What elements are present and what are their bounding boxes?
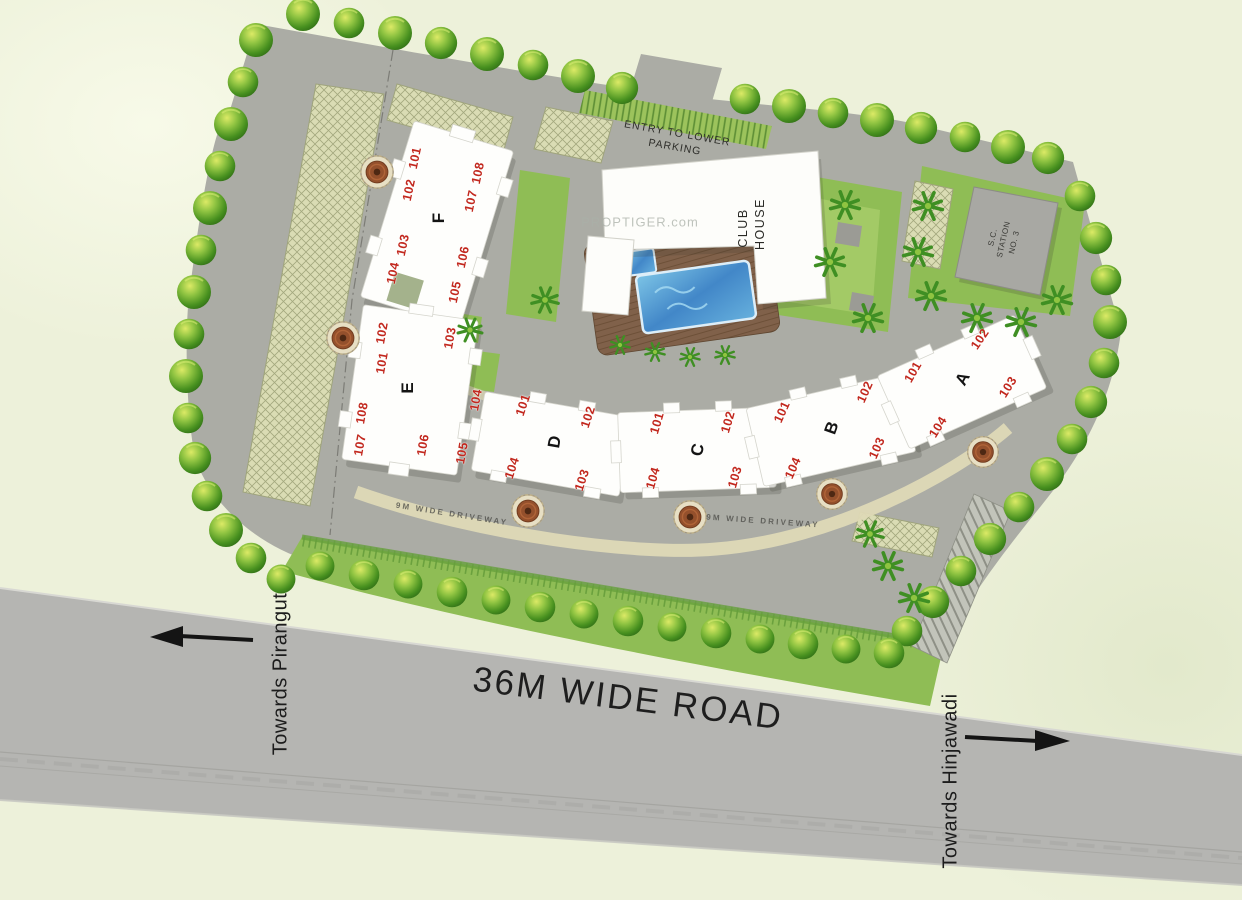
unit-label-F-105: 105 (446, 280, 464, 304)
unit-label-C-101: 101 (647, 410, 667, 435)
direction-label-pirangut: Towards Pirangut (270, 593, 293, 756)
site-plan: 101 102 103 104 105 106 107 108 F 101 10… (0, 0, 1242, 900)
unit-label-D-104: 104 (502, 455, 522, 480)
unit-label-E-105: 105 (453, 441, 471, 465)
unit-label-E-108: 108 (353, 401, 371, 425)
direction-label-hinjawadi: Towards Hinjawadi (940, 693, 963, 868)
unit-label-F-102: 102 (400, 178, 418, 202)
unit-label-E-103: 103 (441, 326, 459, 350)
building-D-label: D (544, 434, 566, 450)
unit-label-D-103: 103 (572, 467, 592, 492)
unit-label-F-108: 108 (469, 161, 487, 185)
unit-label-F-107: 107 (462, 189, 480, 213)
building-F-label: F (429, 213, 449, 223)
unit-label-B-101: 101 (771, 399, 793, 425)
building-A-label: A (951, 369, 974, 389)
unit-label-A-103: 103 (996, 374, 1020, 400)
unit-label-E-101: 101 (373, 351, 391, 375)
watermark: PROPTIGER.com (581, 215, 699, 230)
unit-label-A-104: 104 (926, 414, 950, 440)
main-road-label: 36M WIDE ROAD (470, 660, 785, 739)
unit-label-E-102: 102 (373, 321, 391, 345)
unit-label-E-107: 107 (351, 433, 369, 457)
unit-label-C-103: 103 (725, 464, 745, 489)
unit-label-F-101: 101 (406, 146, 424, 170)
unit-label-D-102: 102 (578, 404, 598, 429)
unit-label-C-104: 104 (643, 465, 663, 490)
unit-label-A-101: 101 (901, 359, 924, 385)
unit-label-F-104: 104 (384, 261, 402, 285)
unit-label-F-106: 106 (454, 245, 472, 269)
building-B-label: B (821, 419, 844, 437)
building-E-label: E (398, 382, 418, 393)
unit-label-F-103: 103 (394, 233, 412, 257)
unit-label-B-102: 102 (854, 379, 876, 405)
plan-labels: 101 102 103 104 105 106 107 108 F 101 10… (0, 0, 1242, 900)
unit-label-B-103: 103 (866, 435, 888, 461)
clubhouse-label: CLUB HOUSE (735, 206, 769, 250)
unit-label-E-104: 104 (467, 388, 485, 412)
unit-label-E-106: 106 (414, 433, 432, 457)
driveway-label-east: 9M WIDE DRIVEWAY (706, 513, 820, 530)
unit-label-C-102: 102 (718, 409, 738, 434)
driveway-label-west: 9M WIDE DRIVEWAY (395, 501, 509, 528)
unit-label-A-102: 102 (968, 326, 992, 352)
unit-label-D-101: 101 (513, 392, 533, 417)
building-C-label: C (687, 442, 709, 458)
unit-label-B-104: 104 (782, 455, 804, 481)
substation-label: S.C. STATION NO. 3 (984, 219, 1024, 261)
entry-lower-parking-label: ENTRY TO LOWER PARKING (612, 117, 741, 166)
